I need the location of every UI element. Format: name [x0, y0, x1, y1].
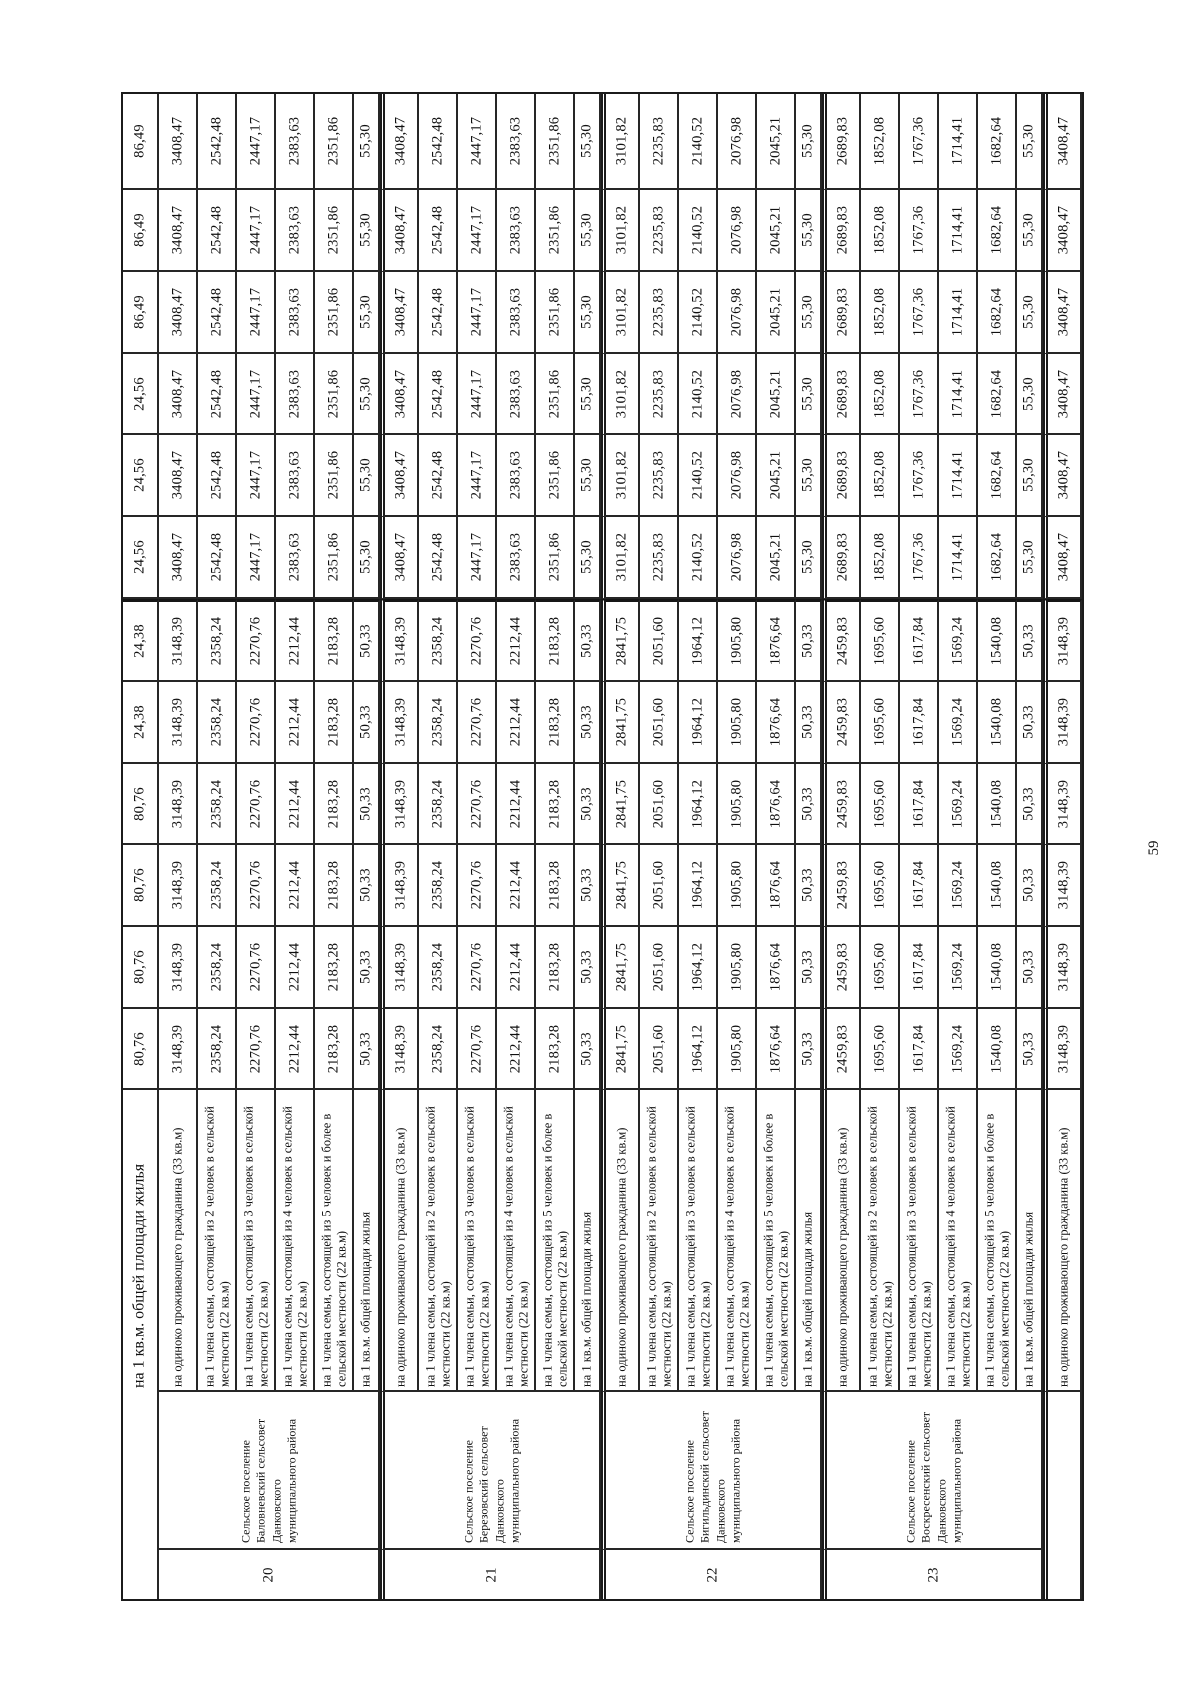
value-cell: 3148,39: [1043, 599, 1082, 682]
value-cell: 2383,63: [497, 517, 536, 599]
cell-text: 2183,28: [546, 603, 563, 680]
cell-text: 1852,08: [871, 274, 888, 350]
cell-text: 2212,44: [286, 929, 303, 1005]
cell-text: 2045,21: [767, 96, 784, 186]
cell-text: 2542,48: [208, 274, 225, 350]
value-cell: 55,30: [796, 517, 822, 599]
value-cell: 2351,86: [315, 435, 354, 517]
cell-text: 2542,48: [429, 519, 446, 595]
cell-text: 2212,44: [507, 1011, 524, 1086]
cell-text: 50,33: [1021, 684, 1038, 760]
cell-text: 2045,21: [767, 437, 784, 513]
value-cell: 2542,48: [419, 354, 458, 435]
value-cell: 86,49: [123, 190, 159, 272]
cell-text: 3148,39: [1056, 766, 1073, 841]
row-label-cell: на 1 члена семьи, состоящей из 2 человек…: [640, 1090, 679, 1392]
value-cell: 2459,83: [822, 764, 861, 845]
cell-text: 2689,83: [835, 96, 852, 186]
value-cell: 2270,76: [237, 927, 276, 1009]
cell-text: 55,30: [800, 274, 817, 350]
value-cell: 3148,39: [380, 845, 419, 927]
row-label-cell: на 1 члена семьи, состоящей из 2 человек…: [861, 1090, 900, 1392]
value-cell: 1682,64: [978, 517, 1017, 599]
value-cell: 2045,21: [757, 272, 796, 354]
value-cell: 55,30: [575, 517, 601, 599]
value-cell: 2383,63: [276, 435, 315, 517]
cell-text: 2383,63: [286, 96, 303, 186]
cell-text: 3408,47: [393, 274, 410, 350]
value-cell: 3148,39: [1043, 1009, 1082, 1090]
value-cell: 2045,21: [757, 435, 796, 517]
cell-text: 3148,39: [169, 603, 186, 680]
cell-text: 2076,98: [728, 356, 745, 431]
cell-text: 2459,83: [835, 929, 852, 1005]
cell-text: на 1 кв.м. общей площади жилья: [801, 1093, 816, 1387]
cell-text: 3408,47: [1056, 356, 1073, 431]
cell-text: 1682,64: [988, 96, 1005, 186]
cell-text: 1569,24: [949, 766, 966, 841]
value-cell: 3148,39: [159, 845, 198, 927]
value-cell: 55,30: [1017, 354, 1043, 435]
value-cell: 1617,84: [900, 1009, 939, 1090]
cell-text: 3101,82: [614, 519, 631, 595]
row-label-cell: на одиноко проживающего гражданина (33 к…: [380, 1090, 419, 1392]
cell-text: 3148,39: [169, 929, 186, 1005]
value-cell: 2076,98: [718, 272, 757, 354]
value-cell: 50,33: [354, 927, 380, 1009]
value-cell: 2235,83: [640, 190, 679, 272]
cell-text: 3148,39: [1056, 603, 1073, 680]
cell-text: 2183,28: [325, 603, 342, 680]
value-cell: 2045,21: [757, 190, 796, 272]
value-cell: 55,30: [354, 190, 380, 272]
cell-text: 55,30: [1021, 437, 1038, 513]
cell-text: 3408,47: [169, 274, 186, 350]
cell-text: 2358,24: [208, 603, 225, 680]
cell-text: 2383,63: [507, 356, 524, 431]
value-cell: 2140,52: [679, 94, 718, 190]
cell-text: 55,30: [579, 519, 596, 595]
value-cell: 2051,60: [640, 845, 679, 927]
cell-text: на 1 члена семьи, состоящей из 3 человек…: [241, 1093, 271, 1387]
cell-text: 2358,24: [429, 847, 446, 923]
cell-text: 2183,28: [325, 1011, 342, 1086]
value-cell: 2383,63: [497, 190, 536, 272]
value-cell: 2045,21: [757, 94, 796, 190]
value-cell: 2212,44: [497, 764, 536, 845]
cell-text: 1695,60: [871, 1011, 888, 1086]
row-label-cell: на 1 кв.м. общей площади жилья: [1017, 1090, 1043, 1392]
value-cell: 2358,24: [419, 1009, 458, 1090]
value-cell: 2351,86: [536, 190, 575, 272]
cell-text: 2212,44: [286, 684, 303, 760]
cell-text: 50,33: [1021, 1011, 1038, 1086]
value-cell: 55,30: [575, 272, 601, 354]
cell-text: 2358,24: [429, 1011, 446, 1086]
row-label-cell: на 1 кв.м. общей площади жилья: [796, 1090, 822, 1392]
value-cell: 2383,63: [497, 94, 536, 190]
cell-text: 20: [260, 1554, 277, 1595]
value-cell: 2183,28: [315, 599, 354, 682]
cell-text: на 1 кв.м. общей площади жилья: [359, 1093, 374, 1387]
cell-text: 1852,08: [871, 192, 888, 268]
value-cell: 1905,80: [718, 682, 757, 764]
value-cell: 3408,47: [380, 94, 419, 190]
value-cell: 55,30: [796, 94, 822, 190]
row-label-cell: на одиноко проживающего гражданина (33 к…: [1043, 1090, 1082, 1392]
cell-text: 1964,12: [689, 847, 706, 923]
value-cell: 2235,83: [640, 435, 679, 517]
cell-text: 86,49: [132, 192, 149, 268]
cell-text: 2447,17: [468, 192, 485, 268]
cell-text: 2183,28: [546, 929, 563, 1005]
cell-text: 2383,63: [286, 519, 303, 595]
value-cell: 50,33: [575, 764, 601, 845]
value-cell: 2383,63: [497, 435, 536, 517]
cell-text: 2212,44: [507, 603, 524, 680]
value-cell: 2542,48: [419, 190, 458, 272]
cell-text: 2383,63: [507, 519, 524, 595]
value-cell: 1852,08: [861, 517, 900, 599]
cell-text: 2140,52: [689, 519, 706, 595]
cell-text: 2183,28: [325, 929, 342, 1005]
value-cell: 1964,12: [679, 682, 718, 764]
value-cell: 1682,64: [978, 94, 1017, 190]
cell-text: 3101,82: [614, 437, 631, 513]
cell-text: 55,30: [1021, 96, 1038, 186]
cell-text: 1767,36: [910, 519, 927, 595]
cell-text: 2447,17: [468, 356, 485, 431]
value-cell: 2183,28: [315, 1009, 354, 1090]
value-cell: 2358,24: [198, 599, 237, 682]
value-cell: 3408,47: [1043, 435, 1082, 517]
cell-text: Сельское поселение Воскресенский сельсов…: [903, 1397, 964, 1543]
value-cell: 2841,75: [601, 764, 640, 845]
cell-text: на 1 члена семьи, состоящей из 5 человек…: [540, 1093, 570, 1387]
cell-text: 3408,47: [393, 192, 410, 268]
value-cell: 2051,60: [640, 927, 679, 1009]
cell-text: 2447,17: [468, 96, 485, 186]
value-cell: 1905,80: [718, 764, 757, 845]
value-cell: 1767,36: [900, 517, 939, 599]
group-number-cell: 20: [159, 1550, 380, 1599]
value-cell: 1540,08: [978, 682, 1017, 764]
cell-text: 80,76: [132, 847, 149, 923]
value-cell: 3148,39: [380, 1009, 419, 1090]
value-cell: 50,33: [575, 927, 601, 1009]
value-cell: 50,33: [796, 682, 822, 764]
value-cell: 2689,83: [822, 94, 861, 190]
cell-text: на 1 члена семьи, состоящей из 2 человек…: [865, 1093, 895, 1387]
cell-text: 1964,12: [689, 1011, 706, 1086]
cell-text: 2235,83: [650, 274, 667, 350]
value-cell: 2212,44: [497, 599, 536, 682]
cell-text: 1767,36: [910, 356, 927, 431]
value-cell: 2270,76: [237, 1009, 276, 1090]
cell-text: 2212,44: [286, 603, 303, 680]
cell-text: 50,33: [800, 603, 817, 680]
cell-text: 86,49: [132, 96, 149, 186]
cell-text: 2459,83: [835, 766, 852, 841]
cell-text: 2447,17: [468, 274, 485, 350]
row-label-cell: на 1 члена семьи, состоящей из 5 человек…: [315, 1090, 354, 1392]
cell-text: на одиноко проживающего гражданина (33 к…: [394, 1093, 409, 1387]
cell-text: на 1 члена семьи, состоящей из 3 человек…: [683, 1093, 713, 1387]
value-cell: 2358,24: [419, 764, 458, 845]
cell-text: 2841,75: [614, 684, 631, 760]
value-cell: 1852,08: [861, 190, 900, 272]
value-cell: 50,33: [796, 845, 822, 927]
value-cell: 55,30: [1017, 190, 1043, 272]
cell-text: 50,33: [579, 766, 596, 841]
cell-text: на 1 члена семьи, состоящей из 4 человек…: [943, 1093, 973, 1387]
value-cell: 1695,60: [861, 845, 900, 927]
cell-text: на одиноко проживающего гражданина (33 к…: [615, 1093, 630, 1387]
value-cell: 2459,83: [822, 1009, 861, 1090]
cell-text: 55,30: [358, 519, 375, 595]
value-cell: 2235,83: [640, 94, 679, 190]
value-cell: 1767,36: [900, 272, 939, 354]
cell-text: 2183,28: [546, 766, 563, 841]
value-cell: 2459,83: [822, 599, 861, 682]
cell-text: 1617,84: [910, 766, 927, 841]
cell-text: 24,56: [132, 519, 149, 595]
cell-text: 3101,82: [614, 192, 631, 268]
cell-text: 55,30: [358, 274, 375, 350]
cell-text: 50,33: [358, 603, 375, 680]
value-cell: 2542,48: [419, 94, 458, 190]
cell-text: 2383,63: [286, 192, 303, 268]
value-cell: 2542,48: [419, 272, 458, 354]
row-label-cell: на 1 кв.м. общей площади жилья: [354, 1090, 380, 1392]
cell-text: 2045,21: [767, 519, 784, 595]
cell-text: 55,30: [1021, 519, 1038, 595]
cell-text: 2212,44: [507, 766, 524, 841]
value-cell: 1767,36: [900, 94, 939, 190]
cell-text: Сельское поселение Баловневский сельсове…: [238, 1397, 299, 1543]
value-cell: 2383,63: [276, 272, 315, 354]
cell-text: 24,38: [132, 684, 149, 760]
cell-text: 1852,08: [871, 519, 888, 595]
tariff-table: 86,4986,4986,4924,5624,5624,5624,3824,38…: [121, 92, 1084, 1601]
value-cell: 3408,47: [380, 354, 419, 435]
cell-text: 2183,28: [546, 1011, 563, 1086]
value-cell: 3148,39: [159, 764, 198, 845]
value-cell: 55,30: [1017, 517, 1043, 599]
value-cell: 1964,12: [679, 845, 718, 927]
value-cell: 3148,39: [1043, 927, 1082, 1009]
value-cell: 1617,84: [900, 599, 939, 682]
cell-text: 1617,84: [910, 684, 927, 760]
value-cell: 2270,76: [458, 682, 497, 764]
value-cell: 2140,52: [679, 435, 718, 517]
cell-text: 1876,64: [767, 684, 784, 760]
value-cell: 55,30: [354, 272, 380, 354]
value-cell: 55,30: [796, 272, 822, 354]
cell-text: 2542,48: [429, 437, 446, 513]
value-cell: 2183,28: [315, 845, 354, 927]
value-cell: 3148,39: [380, 599, 419, 682]
value-cell: 86,49: [123, 94, 159, 190]
value-cell: 2351,86: [536, 435, 575, 517]
value-cell: 2235,83: [640, 517, 679, 599]
value-cell: 1617,84: [900, 845, 939, 927]
value-cell: 2270,76: [237, 845, 276, 927]
cell-text: 24,56: [132, 437, 149, 513]
value-cell: 2212,44: [276, 927, 315, 1009]
cell-text: 3148,39: [393, 1011, 410, 1086]
cell-text: 2447,17: [247, 274, 264, 350]
cell-text: 3148,39: [169, 1011, 186, 1086]
value-cell: 2383,63: [276, 190, 315, 272]
value-cell: 55,30: [354, 517, 380, 599]
cell-text: 2459,83: [835, 603, 852, 680]
cell-text: 2351,86: [325, 192, 342, 268]
cell-text: 1876,64: [767, 847, 784, 923]
value-cell: 1964,12: [679, 599, 718, 682]
value-cell: 2542,48: [419, 435, 458, 517]
value-cell: 3148,39: [380, 764, 419, 845]
cell-text: 2076,98: [728, 519, 745, 595]
cell-text: на 1 кв.м. общей площади жилья: [131, 1094, 150, 1388]
cell-text: 2383,63: [507, 96, 524, 186]
value-cell: 2459,83: [822, 682, 861, 764]
cell-text: на 1 члена семьи, состоящей из 5 человек…: [761, 1093, 791, 1387]
group-number-cell: 23: [822, 1550, 1043, 1599]
cell-text: 2140,52: [689, 356, 706, 431]
cell-text: 50,33: [800, 766, 817, 841]
value-cell: 3101,82: [601, 94, 640, 190]
value-cell: 3148,39: [159, 599, 198, 682]
value-cell: 1852,08: [861, 354, 900, 435]
cell-text: 2183,28: [325, 847, 342, 923]
cell-text: 1695,60: [871, 766, 888, 841]
cell-text: на 1 члена семьи, состоящей из 4 человек…: [501, 1093, 531, 1387]
value-cell: 2383,63: [276, 94, 315, 190]
cell-text: 3408,47: [1056, 437, 1073, 513]
cell-text: 2183,28: [546, 847, 563, 923]
cell-text: 55,30: [579, 192, 596, 268]
cell-text: на 1 члена семьи, состоящей из 4 человек…: [280, 1093, 310, 1387]
cell-text: 2183,28: [325, 684, 342, 760]
cell-text: 1905,80: [728, 929, 745, 1005]
cell-text: 50,33: [800, 684, 817, 760]
value-cell: 1852,08: [861, 94, 900, 190]
value-cell: 1905,80: [718, 845, 757, 927]
cell-text: 80,76: [132, 766, 149, 841]
cell-text: 2689,83: [835, 192, 852, 268]
cell-text: 1964,12: [689, 684, 706, 760]
cell-text: 2051,60: [650, 766, 667, 841]
value-cell: 2140,52: [679, 354, 718, 435]
value-cell: 3101,82: [601, 272, 640, 354]
cell-text: 1569,24: [949, 684, 966, 760]
cell-text: 2270,76: [468, 929, 485, 1005]
value-cell: 2689,83: [822, 435, 861, 517]
cell-text: 2076,98: [728, 437, 745, 513]
value-cell: 2351,86: [536, 517, 575, 599]
cell-text: 50,33: [579, 684, 596, 760]
value-cell: 1695,60: [861, 764, 900, 845]
cell-text: 1876,64: [767, 603, 784, 680]
row-label-cell: на 1 члена семьи, состоящей из 5 человек…: [536, 1090, 575, 1392]
cell-text: 2212,44: [507, 847, 524, 923]
cell-text: 1876,64: [767, 1011, 784, 1086]
value-cell: 50,33: [1017, 682, 1043, 764]
value-cell: 2841,75: [601, 845, 640, 927]
value-cell: 1569,24: [939, 845, 978, 927]
value-cell: 2351,86: [315, 94, 354, 190]
cell-text: 55,30: [800, 519, 817, 595]
cell-text: 2351,86: [325, 96, 342, 186]
cell-text: 2270,76: [468, 603, 485, 680]
cell-text: 2447,17: [247, 519, 264, 595]
cell-text: 1964,12: [689, 929, 706, 1005]
cell-text: 2841,75: [614, 766, 631, 841]
cell-text: 2542,48: [208, 519, 225, 595]
value-cell: 1905,80: [718, 599, 757, 682]
cell-text: 3408,47: [169, 437, 186, 513]
value-cell: 55,30: [1017, 94, 1043, 190]
value-cell: 2447,17: [237, 517, 276, 599]
value-cell: 1876,64: [757, 927, 796, 1009]
cell-text: 1714,41: [949, 519, 966, 595]
cell-text: 2351,86: [325, 519, 342, 595]
value-cell: 55,30: [796, 354, 822, 435]
cell-text: 2447,17: [247, 192, 264, 268]
value-cell: 55,30: [575, 190, 601, 272]
cell-text: 2051,60: [650, 1011, 667, 1086]
row-label-cell: на 1 члена семьи, состоящей из 5 человек…: [757, 1090, 796, 1392]
value-cell: 2358,24: [419, 682, 458, 764]
cell-text: 2542,48: [429, 356, 446, 431]
value-cell: 2447,17: [458, 517, 497, 599]
value-cell: 2841,75: [601, 599, 640, 682]
value-cell: 1852,08: [861, 272, 900, 354]
cell-text: 2689,83: [835, 356, 852, 431]
cell-text: 3148,39: [169, 684, 186, 760]
row-label-cell: на 1 кв.м. общей площади жилья: [123, 1090, 159, 1599]
cell-text: 1695,60: [871, 603, 888, 680]
value-cell: 80,76: [123, 927, 159, 1009]
cell-text: 55,30: [579, 437, 596, 513]
cell-text: 1714,41: [949, 356, 966, 431]
cell-text: 3148,39: [169, 766, 186, 841]
value-cell: 3148,39: [159, 927, 198, 1009]
cell-text: 55,30: [1021, 192, 1038, 268]
value-cell: 1767,36: [900, 435, 939, 517]
value-cell: 1695,60: [861, 599, 900, 682]
cell-text: 50,33: [1021, 929, 1038, 1005]
value-cell: 3101,82: [601, 435, 640, 517]
cell-text: 3408,47: [393, 437, 410, 513]
value-cell: 2076,98: [718, 517, 757, 599]
cell-text: 1569,24: [949, 847, 966, 923]
cell-text: 2459,83: [835, 1011, 852, 1086]
cell-text: 2358,24: [208, 684, 225, 760]
value-cell: 2183,28: [315, 764, 354, 845]
cell-text: на 1 члена семьи, состоящей из 5 человек…: [982, 1093, 1012, 1387]
cell-text: 3148,39: [1056, 684, 1073, 760]
value-cell: 3408,47: [159, 94, 198, 190]
cell-text: 2270,76: [247, 684, 264, 760]
value-cell: 3408,47: [159, 354, 198, 435]
value-cell: 2051,60: [640, 764, 679, 845]
cell-text: 2051,60: [650, 603, 667, 680]
value-cell: 1767,36: [900, 190, 939, 272]
value-cell: 50,33: [354, 1009, 380, 1090]
value-cell: 2351,86: [536, 272, 575, 354]
